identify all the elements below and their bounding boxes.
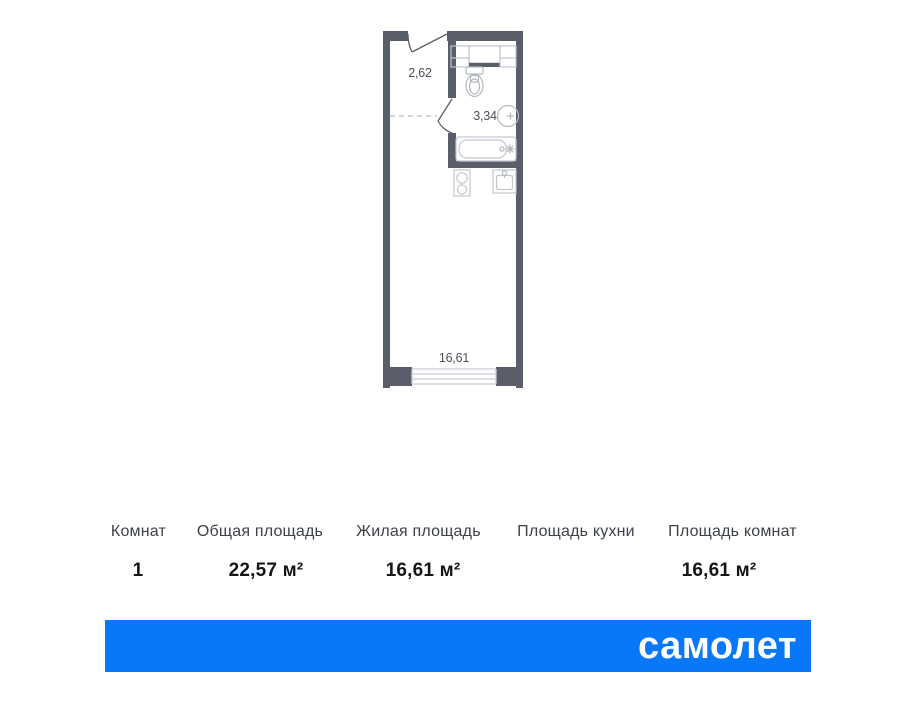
floorplan-svg: 2,62 3,34 16,61 — [383, 31, 523, 388]
col-kitchen-area-header: Площадь кухни — [517, 523, 635, 541]
total-area-value: 22,57 м² — [229, 560, 304, 582]
living-area-value: 16,61 м² — [386, 560, 461, 582]
floorplan: 2,62 3,34 16,61 — [383, 31, 523, 388]
rooms-area-value: 16,61 м² — [682, 560, 757, 582]
entrance-door-icon — [408, 34, 447, 52]
col-living-area-header: Жилая площадь — [356, 523, 480, 541]
kitchen-sink-icon — [493, 170, 516, 193]
rooms-value: 1 — [133, 560, 144, 582]
window-icon — [412, 369, 496, 384]
brand-banner: самолет — [105, 620, 811, 672]
samolet-logo: самолет — [638, 627, 797, 665]
toilet-icon — [466, 67, 483, 97]
bathtub-icon — [456, 137, 516, 161]
hallway-area-label: 2,62 — [408, 66, 432, 80]
cabinets-icon — [451, 46, 516, 67]
col-total-area-header: Общая площадь — [197, 523, 323, 541]
washbasin-icon — [498, 106, 519, 127]
bathroom-area-label: 3,34 — [473, 109, 497, 123]
col-rooms-header: Комнат — [111, 523, 166, 541]
col-rooms-area-header: Площадь комнат — [668, 523, 797, 541]
stove-icon — [454, 170, 470, 196]
bathroom-door-icon — [438, 99, 452, 133]
walls — [383, 31, 523, 388]
room-area-label: 16,61 — [439, 351, 470, 365]
